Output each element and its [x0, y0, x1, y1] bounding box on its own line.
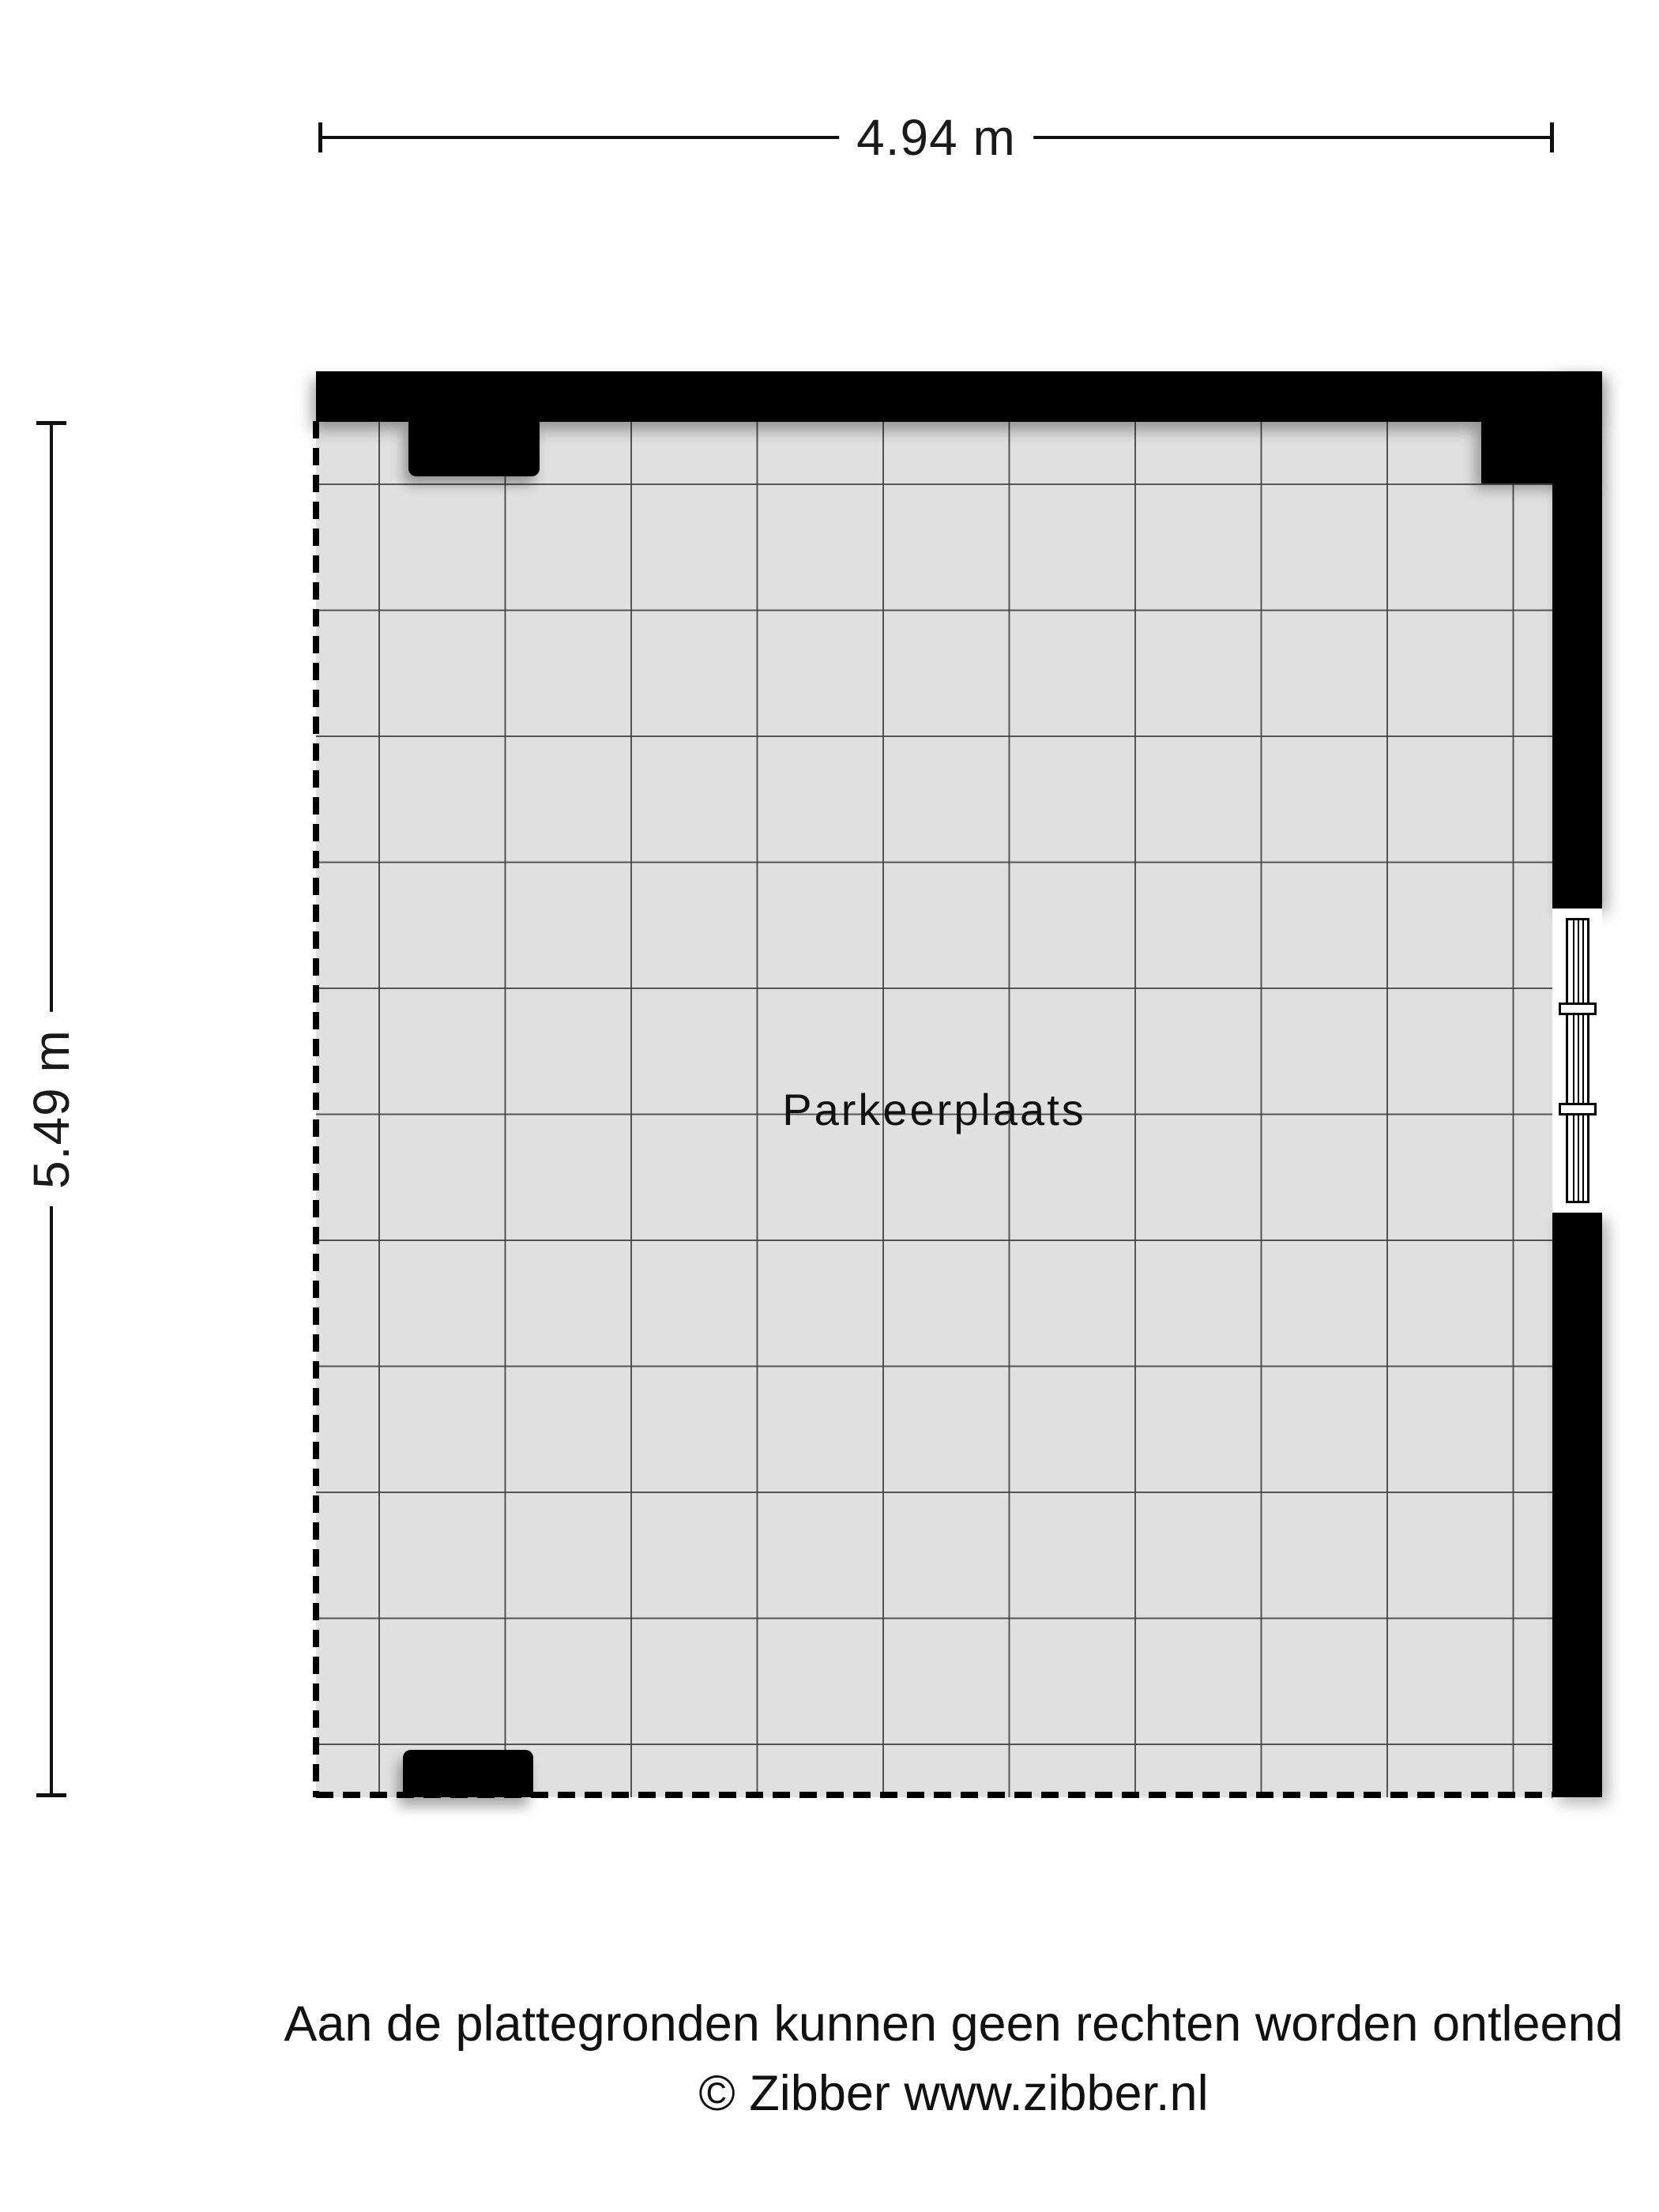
height-dimension-tick-bottom — [36, 1793, 66, 1797]
width-dimension-tick-left — [318, 122, 322, 152]
window-divider — [1559, 1103, 1597, 1115]
height-dimension-tick-top — [36, 421, 66, 425]
wall-stub-top-left — [408, 421, 540, 476]
disclaimer-text: Aan de plattegronden kunnen geen rechten… — [203, 1989, 1659, 2059]
wall-top — [316, 371, 1602, 422]
window-pane-line — [1582, 920, 1584, 1201]
footer: Aan de plattegronden kunnen geen rechten… — [203, 1989, 1659, 2128]
window-pane-line — [1578, 920, 1579, 1201]
window-opening — [1552, 908, 1602, 1213]
open-boundary-left — [313, 421, 319, 1797]
height-dimension-label: 5.49 m — [17, 1012, 85, 1206]
copyright-text: © Zibber www.zibber.nl — [203, 2059, 1659, 2128]
floor-plan-page: 4.94 m 5.49 m Parkeerplaats Aan de platt… — [0, 0, 1659, 2212]
wall-right-upper — [1552, 371, 1602, 908]
open-boundary-bottom — [316, 1792, 1552, 1798]
height-dimension: 5.49 m — [36, 421, 66, 1797]
width-dimension-tick-right — [1550, 122, 1554, 152]
window-pane-line — [1573, 920, 1574, 1201]
width-dimension-label: 4.94 m — [839, 103, 1033, 171]
parking-floor-tiles — [316, 421, 1552, 1797]
window-divider — [1559, 1003, 1597, 1015]
wall-stub-bottom-left — [403, 1750, 533, 1797]
wall-right-lower — [1552, 1213, 1602, 1797]
window-icon — [1566, 918, 1589, 1203]
width-dimension: 4.94 m — [318, 122, 1554, 152]
